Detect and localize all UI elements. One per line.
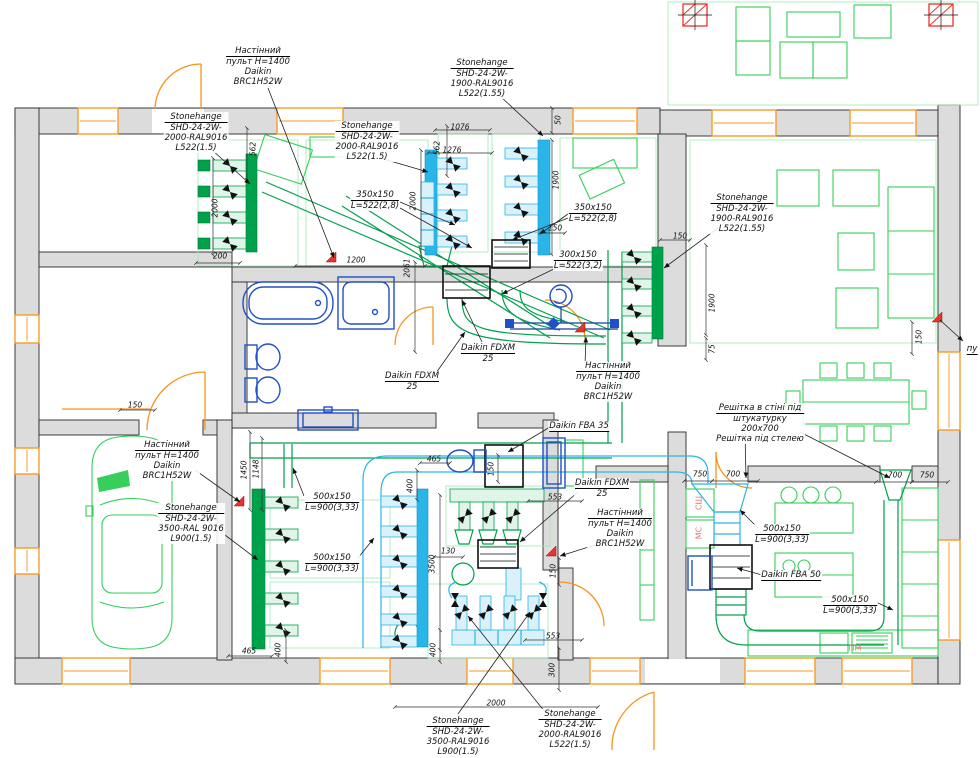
column-marker: [678, 0, 712, 30]
shower: [338, 277, 394, 329]
terrace-furniture: [736, 5, 891, 78]
leader-lines: [195, 88, 963, 714]
fridge: [688, 556, 712, 590]
floor-plan-svg: [0, 0, 980, 758]
car: [86, 436, 178, 649]
toilet: [245, 377, 280, 403]
column-marker: [924, 0, 958, 30]
toilet: [245, 344, 280, 370]
floor-plan-stage: Настіннийпульт H=1400DaikinBRC1H52WStone…: [0, 0, 980, 758]
terrace-layer: [668, 0, 978, 105]
toilet: [447, 450, 486, 472]
